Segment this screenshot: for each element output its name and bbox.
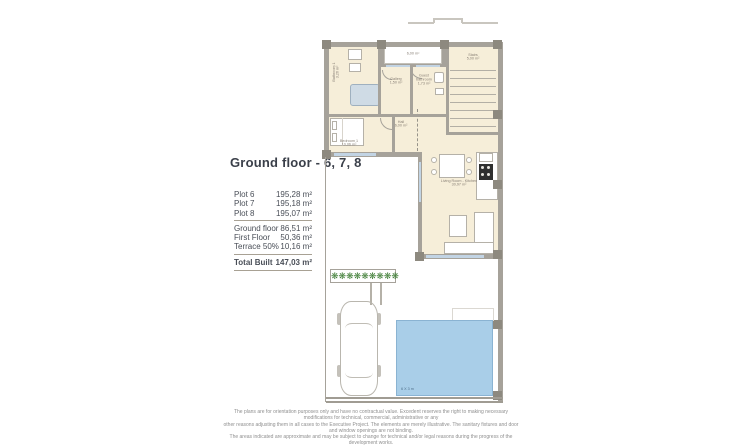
plot-value: 195,18 m²	[276, 199, 312, 208]
wall	[324, 42, 329, 157]
total-label: Total Built	[234, 258, 273, 267]
disclaimer: The plans are for orientation purposes o…	[220, 409, 522, 445]
area-label: Ground floor	[234, 224, 278, 233]
dining-table-icon	[439, 154, 465, 178]
plot-value: 195,07 m²	[276, 209, 312, 218]
plant-icon: ❋	[376, 272, 384, 281]
plant-icon: ❋	[384, 272, 392, 281]
disclaimer-line: other reasons adjusting them in all case…	[220, 422, 522, 435]
pergola-post	[380, 283, 382, 305]
car-windshield	[345, 323, 373, 334]
plant-icon: ❋	[346, 272, 354, 281]
wall	[446, 47, 449, 135]
window	[386, 65, 410, 67]
window	[416, 65, 440, 67]
plant-icon: ❋	[391, 272, 399, 281]
roof-dimension-line	[434, 18, 462, 20]
separator-line	[234, 270, 312, 271]
plot-boundary-line	[325, 157, 326, 402]
car-body	[340, 301, 378, 396]
table-row: Ground floor 86,51 m²	[234, 224, 312, 233]
bathroom-label: Bathroom 1 3,26 m²	[331, 60, 341, 85]
table-row: Terrace 50% 10,16 m²	[234, 242, 312, 251]
disclaimer-line: The plans are for orientation purposes o…	[220, 409, 522, 422]
chair-icon	[466, 169, 472, 175]
car-rear-window	[345, 367, 373, 378]
planter-box: ❋ ❋ ❋ ❋ ❋ ❋ ❋ ❋ ❋	[330, 269, 396, 283]
chair-icon	[431, 157, 437, 163]
pillar	[493, 110, 502, 119]
roof-dimension-line	[462, 22, 498, 24]
living-room-label: Living Room - Kitchen 30,97 m²	[435, 179, 483, 188]
bedroom-label: Bedroom 1 10,06 m²	[335, 139, 364, 148]
window	[426, 255, 484, 258]
pillar	[493, 40, 502, 49]
guest-bathroom-label: Guest bathroom 1,73 m²	[417, 74, 432, 86]
wall	[410, 67, 413, 117]
wall	[446, 132, 500, 135]
washer-icon	[348, 49, 362, 60]
total-value: 147,03 m²	[276, 258, 312, 267]
chair-icon	[466, 157, 472, 163]
kitchen-sink-icon	[479, 153, 493, 162]
pool-size-label: 6 X 3 m	[401, 387, 414, 391]
separator-line	[234, 254, 312, 255]
total-row: Total Built 147,03 m²	[234, 258, 312, 267]
hall-label: Hall 6,00 m²	[389, 120, 413, 129]
plant-icon: ❋	[369, 272, 377, 281]
plant-icon: ❋	[331, 272, 339, 281]
area-value: 50,36 m²	[280, 233, 312, 242]
sofa-icon	[444, 242, 494, 254]
roof-dimension-line	[408, 22, 434, 24]
bathtub-icon	[350, 84, 380, 106]
pillar	[493, 180, 502, 189]
area-label: First Floor	[234, 233, 270, 242]
plot-boundary-line	[326, 401, 503, 403]
plot-label: Plot 6	[234, 190, 254, 199]
stairs	[450, 70, 496, 132]
plant-icon: ❋	[361, 272, 369, 281]
table-row: First Floor 50,36 m²	[234, 233, 312, 242]
plant-icon: ❋	[339, 272, 347, 281]
porch-label: 6,00 m²	[395, 50, 431, 57]
chair-icon	[431, 169, 437, 175]
plot-label: Plot 8	[234, 209, 254, 218]
stove-icon	[479, 164, 493, 180]
table-row: Plot 6 195,28 m²	[234, 190, 312, 199]
car-icon	[338, 301, 380, 396]
burner-dot	[481, 173, 484, 176]
measurements-table: Plot 6 195,28 m² Plot 7 195,18 m² Plot 8…	[234, 190, 312, 273]
area-value: 86,51 m²	[280, 224, 312, 233]
table-row: Plot 7 195,18 m²	[234, 199, 312, 208]
plot-label: Plot 7	[234, 199, 254, 208]
page: Ground floor - 6, 7, 8 Plot 6 195,28 m² …	[0, 0, 740, 445]
pillow-icon	[332, 121, 337, 130]
toilet-icon	[434, 72, 444, 83]
burner-dot	[487, 173, 490, 176]
wall	[324, 114, 381, 117]
pillar	[415, 252, 424, 261]
pillar	[493, 391, 502, 400]
wall	[324, 42, 502, 47]
pool: 6 X 3 m	[396, 320, 493, 396]
pillar	[377, 40, 386, 49]
pillar	[322, 40, 331, 49]
plant-icon: ❋	[354, 272, 362, 281]
burner-dot	[487, 166, 490, 169]
gallery-label: Gallery 1,50 m²	[386, 77, 406, 86]
window	[334, 153, 376, 156]
pillar	[322, 150, 331, 159]
coffee-table-icon	[449, 215, 467, 237]
area-label: Terrace 50%	[234, 242, 279, 251]
separator-line	[234, 220, 312, 221]
window	[419, 162, 421, 202]
sink-icon	[435, 88, 444, 95]
wall	[498, 42, 503, 402]
sink-icon	[349, 63, 361, 72]
burner-dot	[481, 166, 484, 169]
plot-boundary-line	[326, 397, 503, 399]
table-row: Plot 8 195,07 m²	[234, 209, 312, 218]
floor-plan: ❋ ❋ ❋ ❋ ❋ ❋ ❋ ❋ ❋ 6 X 3 m 6,	[322, 14, 506, 406]
disclaimer-line: The areas indicated are approximate and …	[220, 434, 522, 445]
area-value: 10,16 m²	[280, 242, 312, 251]
pillar	[493, 250, 502, 259]
pillar	[493, 320, 502, 329]
stairs-label: Stairs 5,00 m²	[459, 53, 488, 62]
pillar	[440, 40, 449, 49]
plot-value: 195,28 m²	[276, 190, 312, 199]
